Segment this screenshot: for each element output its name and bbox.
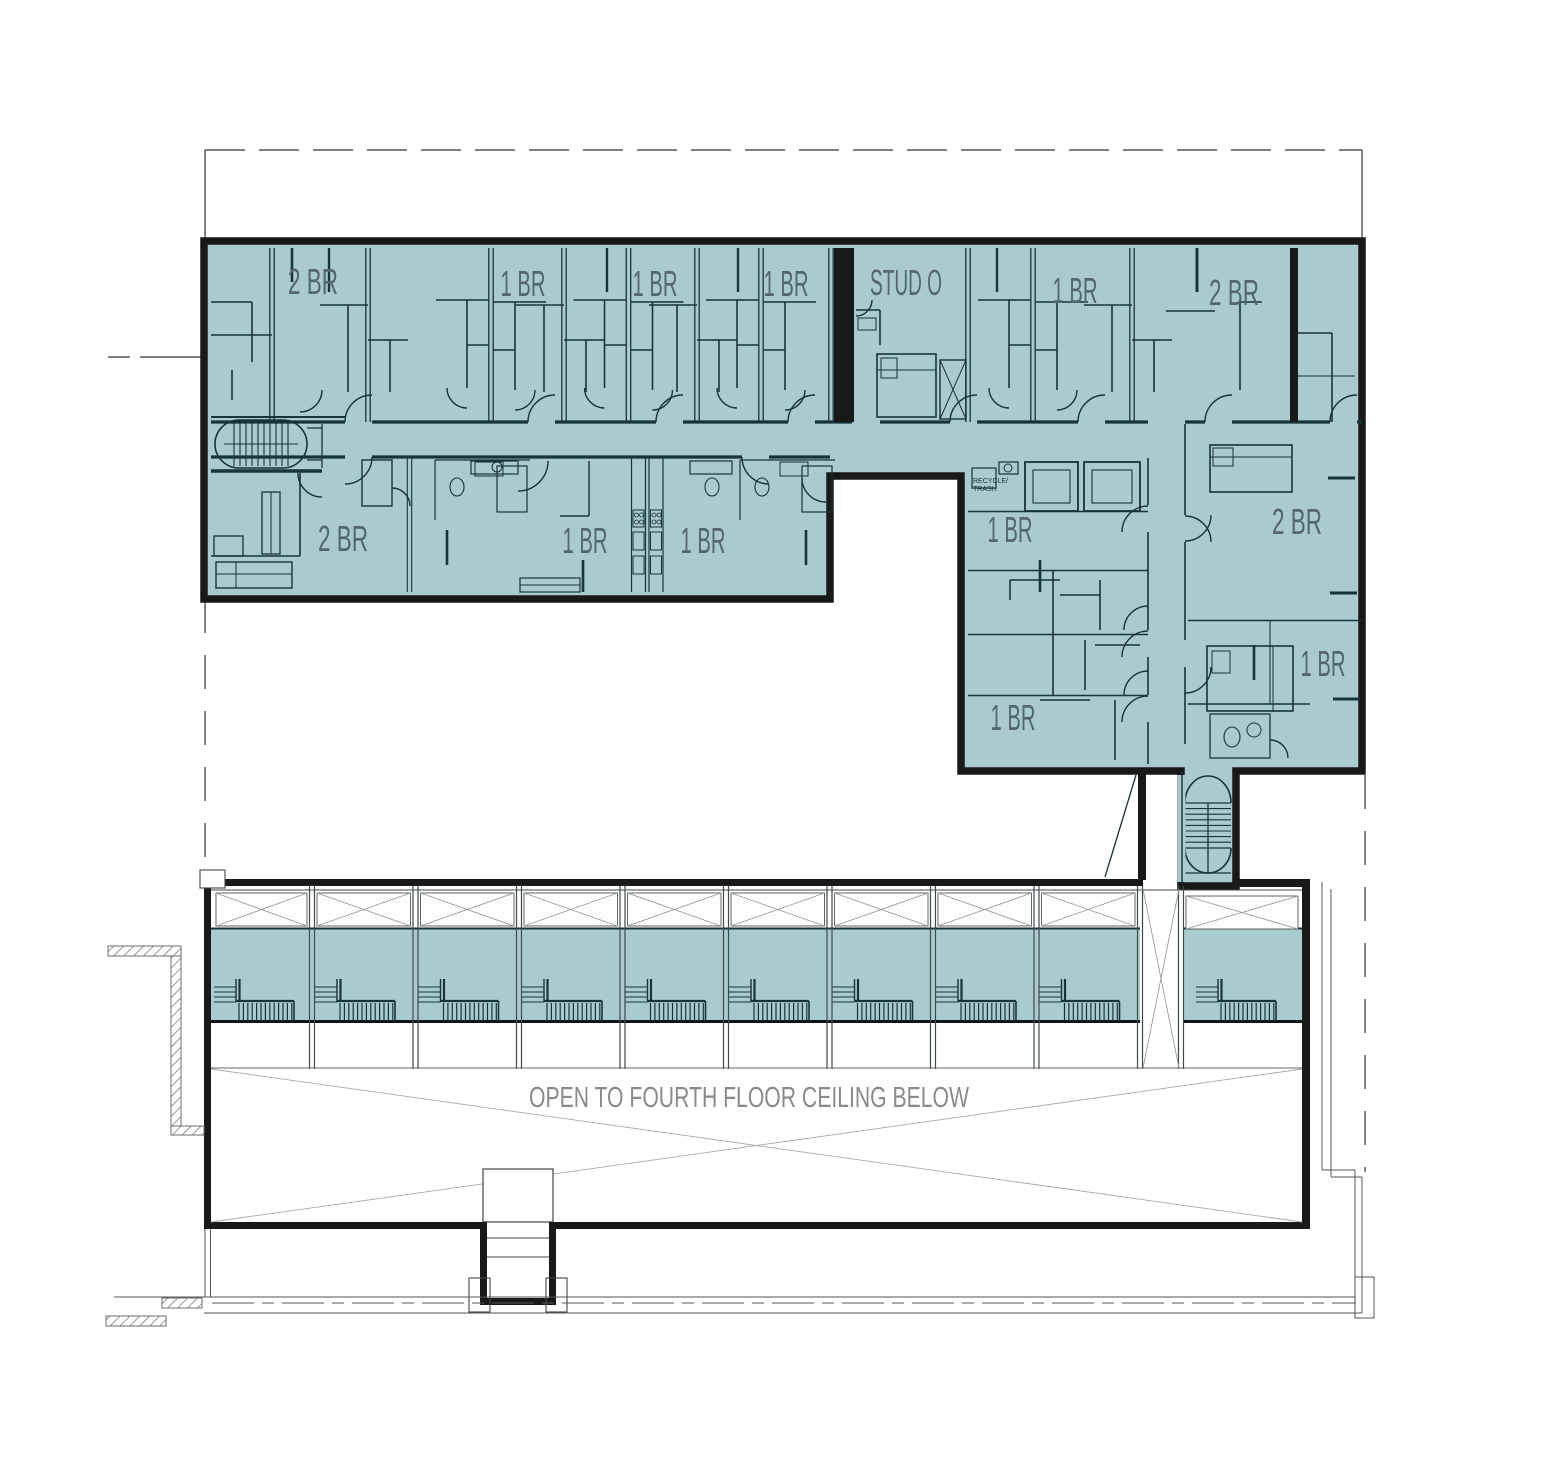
svg-text:2 BR: 2 BR [318,518,368,559]
svg-text:OPEN TO FOURTH FLOOR CEILING B: OPEN TO FOURTH FLOOR CEILING BELOW [529,1082,969,1114]
svg-text:1 BR: 1 BR [563,520,608,561]
svg-text:1 BR: 1 BR [633,263,678,304]
svg-text:1 BR: 1 BR [991,697,1036,738]
svg-text:2 BR: 2 BR [1209,272,1259,313]
svg-text:1 BR: 1 BR [764,263,809,304]
svg-text:1 BR: 1 BR [501,263,546,304]
svg-text:1 BR: 1 BR [681,520,726,561]
svg-text:2 BR: 2 BR [288,261,338,302]
svg-text:2 BR: 2 BR [1272,501,1322,542]
svg-text:RECYCLE/: RECYCLE/ [973,478,1008,485]
svg-text:STUD O: STUD O [870,262,942,303]
svg-text:TRASH: TRASH [973,486,997,493]
svg-text:1 BR: 1 BR [1053,270,1098,311]
svg-text:1 BR: 1 BR [1301,643,1346,684]
svg-text:1 BR: 1 BR [988,509,1033,550]
